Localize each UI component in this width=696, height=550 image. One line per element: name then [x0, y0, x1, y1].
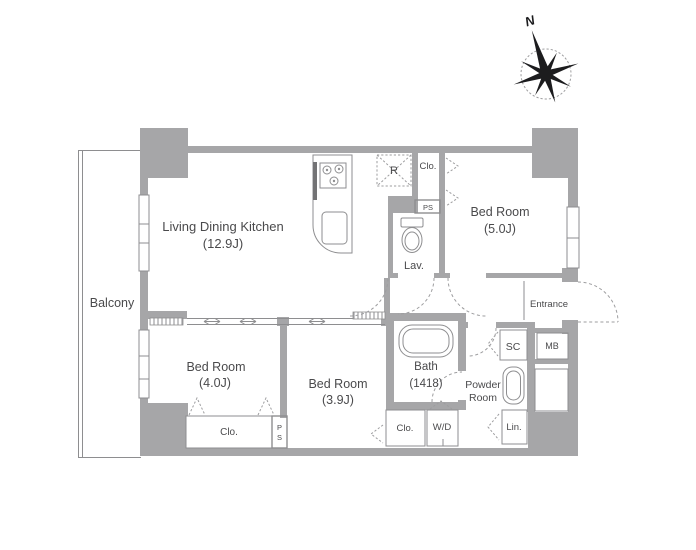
bedroom5-size: (5.0J) — [484, 222, 516, 236]
window-bedroom4 — [139, 330, 149, 398]
pipe-space-top-label: PS — [423, 203, 433, 212]
toilet-icon — [401, 218, 423, 253]
pipe-space-bottom-box — [272, 416, 287, 448]
kitchen — [313, 155, 352, 253]
shoe-closet-label: SC — [506, 341, 521, 353]
wall-ps-filler — [388, 196, 415, 213]
wall-mb-top — [535, 328, 568, 333]
kitchen-sink-icon — [322, 212, 347, 244]
bifold-closet-mid — [371, 425, 383, 443]
wall-lav-left — [388, 213, 393, 278]
slide-arrow-3 — [309, 319, 325, 325]
structure-walls — [140, 128, 578, 456]
door-arc-lav — [398, 278, 434, 314]
closet-top-label: Clo. — [420, 161, 437, 172]
door-gap-powder — [468, 321, 496, 329]
bedroom4-name: Bed Room — [186, 360, 245, 374]
bifold-closet-bedroom4-a — [189, 398, 205, 415]
compass-north-label: N — [523, 12, 537, 29]
pipe-space-bottom-s: S — [277, 433, 282, 442]
washer-dryer-label: W/D — [433, 422, 452, 433]
bedroom5-name: Bed Room — [470, 205, 529, 219]
vanity-sink-icon — [503, 367, 524, 404]
wall-mass-bottom-right — [528, 412, 578, 456]
bedroom4-size: (4.0J) — [199, 376, 231, 390]
linen-label: Lin. — [506, 422, 521, 433]
wall-right-lower — [568, 320, 578, 412]
bifold-closet-top-a — [446, 158, 458, 174]
ldk-name: Living Dining Kitchen — [162, 219, 283, 234]
sliding-rail-hatch-left — [150, 318, 183, 325]
window-ldk — [139, 195, 149, 271]
meter-box — [535, 369, 568, 411]
bath-name: Bath — [414, 361, 438, 373]
slide-arrow-1 — [204, 319, 220, 325]
ldk-size: (12.9J) — [203, 236, 243, 251]
wall-sc-mb-divider — [527, 322, 535, 412]
door-gap-bedroom5 — [450, 272, 486, 279]
compass-ray-diag2 — [532, 51, 559, 96]
door-arc-bedroom5 — [448, 278, 486, 316]
window-bedroom5 — [567, 207, 579, 268]
door-arc-ldk — [350, 278, 388, 316]
wall-lav-bottom-left — [388, 273, 398, 278]
closet-mid-label: Clo. — [397, 423, 414, 434]
wall-right-upper — [568, 128, 578, 208]
kitchen-partition — [313, 162, 317, 200]
floor-plan: N Balcony Living Dining Kitchen (12.9J) … — [0, 0, 696, 550]
wall-lav-bottom-right — [434, 273, 444, 278]
compass: N — [494, 4, 587, 113]
wall-column-top-left — [140, 128, 188, 178]
wall-bottom — [140, 448, 578, 456]
bifold-closet-bedroom4-b — [258, 398, 274, 415]
mail-box-label: MB — [545, 341, 559, 351]
wall-column-bottom-left — [140, 403, 188, 448]
slide-arrow-2 — [240, 319, 256, 325]
closet-bedroom4-label: Clo. — [220, 427, 238, 438]
wall-mb-bottom — [535, 359, 568, 364]
door-arc-powder — [468, 328, 496, 356]
refrigerator-label: R — [390, 165, 398, 177]
door-arc-entrance — [578, 282, 618, 322]
bifold-closet-top-b — [446, 190, 458, 206]
lavatory-label: Lav. — [404, 260, 424, 272]
powder-room-line2: Room — [469, 392, 497, 404]
bedroom3-name: Bed Room — [308, 377, 367, 391]
wall-top — [186, 146, 532, 153]
bifold-linen — [488, 414, 499, 440]
bifold-shoe-closet — [488, 332, 498, 356]
balcony-label: Balcony — [90, 296, 135, 310]
powder-room-line1: Powder — [465, 379, 501, 391]
wall-bedroom-divider — [280, 322, 287, 418]
wall-closet-bedroom5 — [439, 153, 445, 278]
stove-icon — [320, 163, 346, 188]
bathtub-icon — [399, 325, 453, 357]
pipe-space-bottom-p: P — [277, 423, 282, 432]
bath-size: (1418) — [409, 378, 442, 390]
bedroom3-size: (3.9J) — [322, 393, 354, 407]
entrance-label: Entrance — [530, 299, 568, 310]
